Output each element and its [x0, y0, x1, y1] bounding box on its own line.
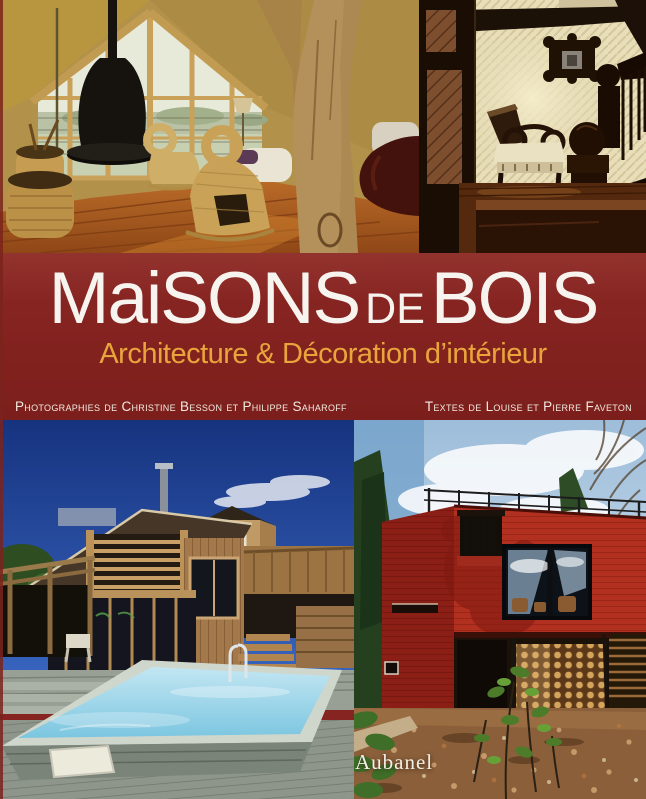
- reflecting-window: [504, 546, 590, 618]
- book-subtitle: Architecture & Décoration d’intérieur: [99, 338, 546, 371]
- credits-row: Photographies de Christine Besson et Phi…: [0, 399, 646, 420]
- dark-doorway: [457, 640, 507, 714]
- carved-wall-frame: [543, 33, 601, 84]
- directors-chair: [66, 634, 90, 648]
- bottom-photo-row: [0, 420, 646, 799]
- neighbour-house: [58, 508, 116, 526]
- credit-authors: Textes de Louise et Pierre Faveton: [425, 399, 632, 414]
- photo-dark-interior: [419, 0, 646, 253]
- slatted-screen: [609, 634, 646, 710]
- deck-skylight: [50, 746, 114, 777]
- credit-photographers: Photographies de Christine Besson et Phi…: [15, 399, 347, 414]
- book-title: MaiSONSdeBOIS: [49, 264, 598, 333]
- title-de: de: [359, 285, 431, 333]
- slit-window: [392, 604, 438, 613]
- title-band: MaiSONSdeBOIS Architecture & Décoration …: [0, 253, 646, 420]
- publisher-name: Aubanel: [355, 750, 433, 775]
- photo-pool-house: [0, 420, 354, 799]
- scan-edge: [0, 0, 3, 799]
- chimney: [160, 468, 168, 514]
- title-maisons: MaiSONS: [49, 258, 360, 339]
- photo-aframe-interior: [0, 0, 419, 253]
- photo-red-house: [354, 420, 646, 799]
- glossy-floor: [459, 183, 646, 253]
- small-window: [385, 662, 398, 674]
- top-photo-row: [0, 0, 646, 253]
- title-bois: BOIS: [431, 258, 597, 339]
- recessed-balcony: [457, 510, 505, 566]
- book-cover: MaiSONSdeBOIS Architecture & Décoration …: [0, 0, 646, 799]
